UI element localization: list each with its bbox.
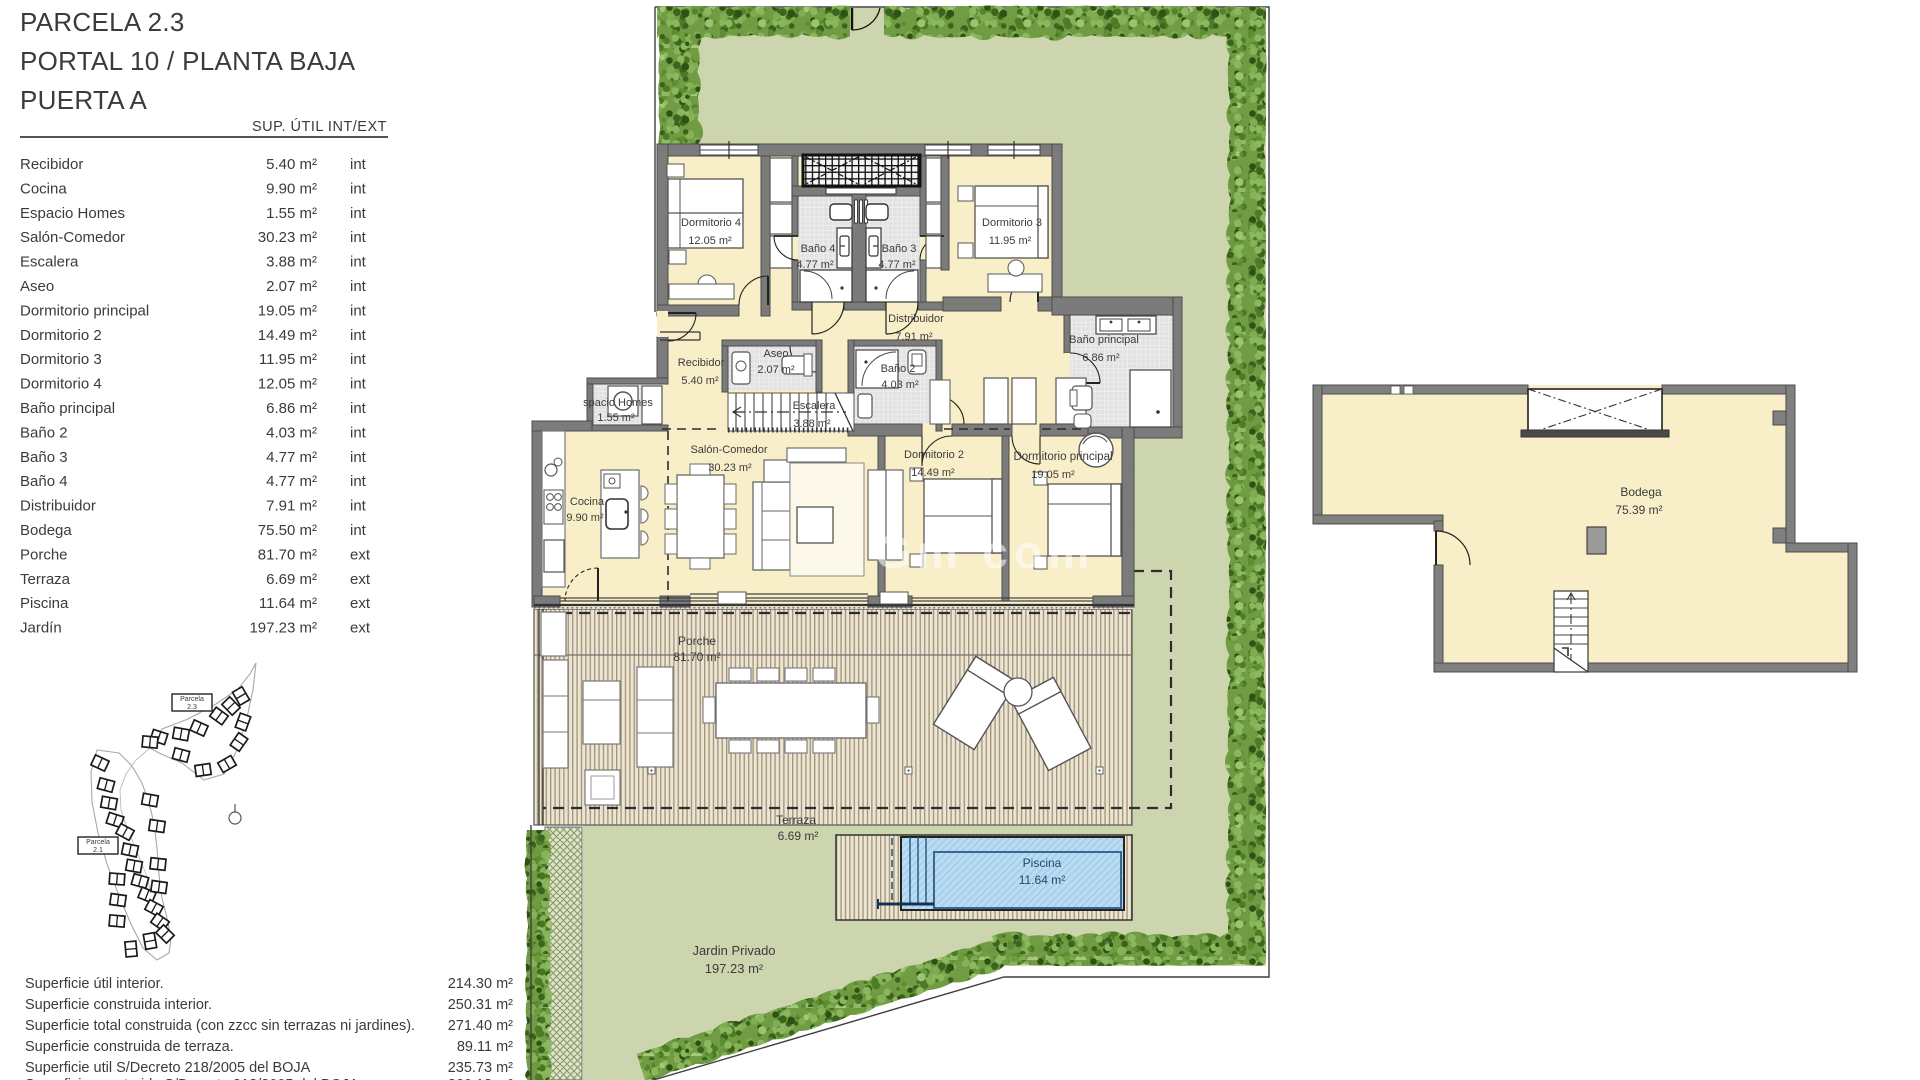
svg-text:Salón-Comedor: Salón-Comedor [20,229,125,246]
svg-text:271.40 m²: 271.40 m² [448,1018,513,1034]
svg-text:19.05 m²: 19.05 m² [1031,469,1075,481]
svg-text:ext: ext [350,595,371,612]
svg-text:7.91 m²: 7.91 m² [266,498,317,515]
svg-text:Terraza: Terraza [776,813,816,827]
svg-text:Baño principal: Baño principal [20,400,115,417]
svg-text:1.55 m²: 1.55 m² [266,205,317,222]
svg-text:197.23 m²: 197.23 m² [705,961,764,976]
svg-text:Aseo: Aseo [20,278,54,295]
svg-text:Superficie util S/Decreto 218/: Superficie util S/Decreto 218/2005 del B… [25,1060,311,1076]
svg-text:2.1: 2.1 [93,847,103,854]
svg-text:int: int [350,254,367,271]
svg-text:75.50 m²: 75.50 m² [258,522,317,539]
svg-text:Porche: Porche [20,546,68,563]
svg-text:14.49 m²: 14.49 m² [258,327,317,344]
svg-text:3.88 m²: 3.88 m² [793,418,831,430]
svg-text:4.03 m²: 4.03 m² [881,379,919,391]
svg-text:Piscina: Piscina [1023,856,1062,870]
svg-text:Dormitorio principal: Dormitorio principal [1013,451,1112,463]
svg-text:Superficie total construida (c: Superficie total construida (con zzcc si… [25,1018,415,1034]
svg-text:12.05 m²: 12.05 m² [688,235,732,247]
svg-text:Cocina: Cocina [20,180,67,197]
svg-text:6.69 m²: 6.69 m² [778,829,819,843]
svg-text:Escalera: Escalera [20,254,79,271]
svg-text:2.3: 2.3 [187,704,197,711]
svg-text:6.86 m²: 6.86 m² [266,400,317,417]
svg-text:4.77 m²: 4.77 m² [796,259,834,271]
svg-text:int: int [350,498,367,515]
svg-text:int: int [350,302,367,319]
svg-text:30.23 m²: 30.23 m² [708,462,752,474]
svg-text:Parcela: Parcela [180,696,204,703]
svg-text:Espacio Homes: Espacio Homes [20,205,125,222]
svg-text:4.77 m²: 4.77 m² [266,449,317,466]
svg-text:235.73 m²: 235.73 m² [448,1060,513,1076]
svg-text:Recibidor: Recibidor [20,156,83,173]
svg-text:Bodega: Bodega [1620,485,1662,499]
svg-text:int: int [350,180,367,197]
svg-text:Superficie construida de terra: Superficie construida de terraza. [25,1039,234,1055]
svg-text:Dormitorio 3: Dormitorio 3 [20,351,102,368]
svg-text:int: int [350,205,367,222]
svg-text:int: int [350,400,367,417]
svg-text:Superficie útil interior.: Superficie útil interior. [25,976,164,992]
svg-text:19.05 m²: 19.05 m² [258,302,317,319]
svg-text:int: int [350,473,367,490]
svg-text:11.64 m²: 11.64 m² [1019,873,1065,887]
svg-text:Gm com: Gm com [875,526,1095,578]
svg-text:int: int [350,229,367,246]
svg-text:ext: ext [350,546,371,563]
svg-text:12.05 m²: 12.05 m² [258,376,317,393]
svg-text:2.07 m²: 2.07 m² [266,278,317,295]
svg-text:Dormitorio principal: Dormitorio principal [20,302,149,319]
svg-text:PORTAL 10 / PLANTA BAJA: PORTAL 10 / PLANTA BAJA [20,46,356,76]
svg-text:SUP. ÚTIL INT/EXT: SUP. ÚTIL INT/EXT [252,118,387,135]
svg-text:int: int [350,351,367,368]
svg-text:4.03 m²: 4.03 m² [266,424,317,441]
svg-text:9.90 m²: 9.90 m² [566,512,604,524]
svg-text:Bodega: Bodega [20,522,72,539]
svg-text:7.91 m²: 7.91 m² [895,331,933,343]
svg-text:11.95 m²: 11.95 m² [989,235,1032,247]
svg-text:int: int [350,449,367,466]
svg-text:Baño 2: Baño 2 [881,363,916,375]
svg-text:30.23 m²: 30.23 m² [258,229,317,246]
svg-text:81.70 m²: 81.70 m² [673,650,720,664]
svg-text:Baño 3: Baño 3 [882,243,917,255]
svg-text:Superficie construida interior: Superficie construida interior. [25,997,212,1013]
svg-text:Baño 2: Baño 2 [20,424,68,441]
svg-text:1.55 m²: 1.55 m² [597,412,635,424]
svg-text:3.88 m²: 3.88 m² [266,254,317,271]
svg-text:int: int [350,522,367,539]
svg-text:214.30 m²: 214.30 m² [448,976,513,992]
svg-text:PUERTA A: PUERTA A [20,85,148,115]
svg-text:75.39 m²: 75.39 m² [1615,503,1662,517]
svg-text:81.70 m²: 81.70 m² [258,546,317,563]
svg-text:Cocina: Cocina [570,496,605,508]
svg-text:Dormitorio 2: Dormitorio 2 [20,327,102,344]
svg-text:int: int [350,156,367,173]
svg-text:Baño 3: Baño 3 [20,449,68,466]
svg-text:int: int [350,376,367,393]
svg-text:6.86 m²: 6.86 m² [1082,352,1120,364]
svg-text:Baño 4: Baño 4 [20,473,68,490]
svg-text:Terraza: Terraza [20,571,71,588]
svg-text:Distribuidor: Distribuidor [888,313,944,325]
svg-text:250.31 m²: 250.31 m² [448,997,513,1013]
svg-text:4.77 m²: 4.77 m² [266,473,317,490]
svg-text:ext: ext [350,571,371,588]
svg-text:PARCELA 2.3: PARCELA 2.3 [20,7,185,37]
svg-text:14.49 m²: 14.49 m² [911,467,955,479]
svg-text:int: int [350,327,367,344]
svg-text:Dormitorio 2: Dormitorio 2 [904,449,964,461]
svg-text:2.07 m²: 2.07 m² [757,364,795,376]
svg-text:ext: ext [350,620,371,637]
svg-text:int: int [350,424,367,441]
svg-text:Jardín: Jardín [20,620,62,637]
svg-text:Porche: Porche [678,634,716,648]
svg-text:9.90 m²: 9.90 m² [266,180,317,197]
svg-text:5.40 m²: 5.40 m² [266,156,317,173]
svg-text:Aseo: Aseo [763,348,788,360]
svg-text:Baño principal: Baño principal [1069,334,1139,346]
svg-text:Salón-Comedor: Salón-Comedor [690,444,767,456]
svg-text:5.40 m²: 5.40 m² [681,375,719,387]
svg-text:Dormitorio 4: Dormitorio 4 [681,217,741,229]
svg-text:Jardin Privado: Jardin Privado [692,943,775,958]
svg-text:Dormitorio 4: Dormitorio 4 [20,376,102,393]
svg-text:11.95 m²: 11.95 m² [259,351,317,368]
svg-text:Recibidor: Recibidor [678,357,725,369]
svg-text:spacio Homes: spacio Homes [583,397,653,409]
svg-text:6.69 m²: 6.69 m² [266,571,317,588]
svg-text:Escalera: Escalera [793,400,837,412]
svg-text:89.11 m²: 89.11 m² [457,1039,513,1055]
svg-text:4.77 m²: 4.77 m² [878,259,916,271]
svg-text:Dormitorio 3: Dormitorio 3 [982,217,1042,229]
svg-text:197.23 m²: 197.23 m² [249,620,317,637]
svg-text:11.64 m²: 11.64 m² [259,595,317,612]
svg-text:Distribuidor: Distribuidor [20,498,96,515]
svg-text:Piscina: Piscina [20,595,69,612]
svg-text:Parcela: Parcela [86,839,110,846]
svg-text:Baño 4: Baño 4 [801,243,836,255]
svg-text:int: int [350,278,367,295]
